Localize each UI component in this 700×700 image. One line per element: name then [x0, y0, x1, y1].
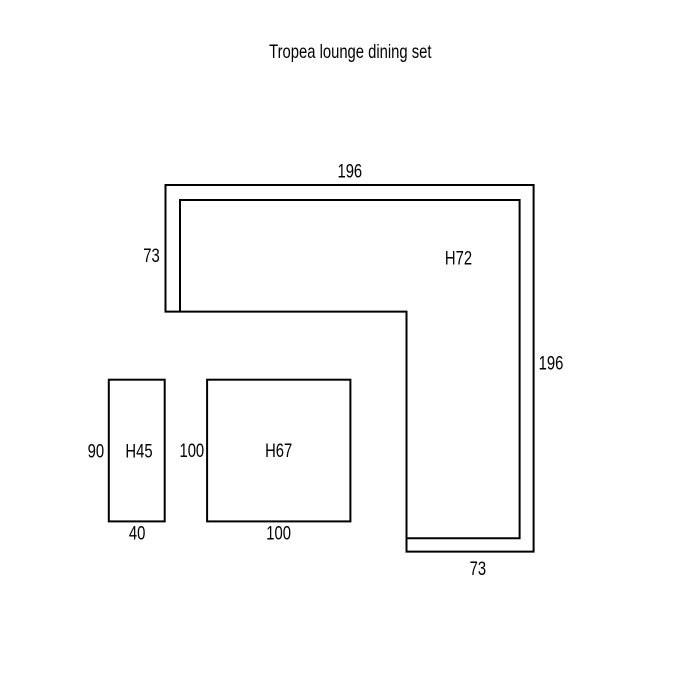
svg-text:73: 73	[143, 245, 159, 266]
svg-text:100: 100	[179, 440, 204, 461]
svg-text:90: 90	[88, 441, 104, 462]
svg-text:100: 100	[266, 523, 291, 544]
svg-text:H45: H45	[125, 441, 152, 462]
svg-text:Tropea lounge dining set: Tropea lounge dining set	[269, 41, 432, 62]
svg-text:196: 196	[539, 353, 564, 374]
svg-text:H72: H72	[445, 248, 472, 269]
svg-text:73: 73	[470, 558, 486, 579]
svg-text:196: 196	[337, 161, 362, 182]
svg-text:H67: H67	[265, 440, 292, 461]
svg-text:40: 40	[129, 523, 145, 544]
